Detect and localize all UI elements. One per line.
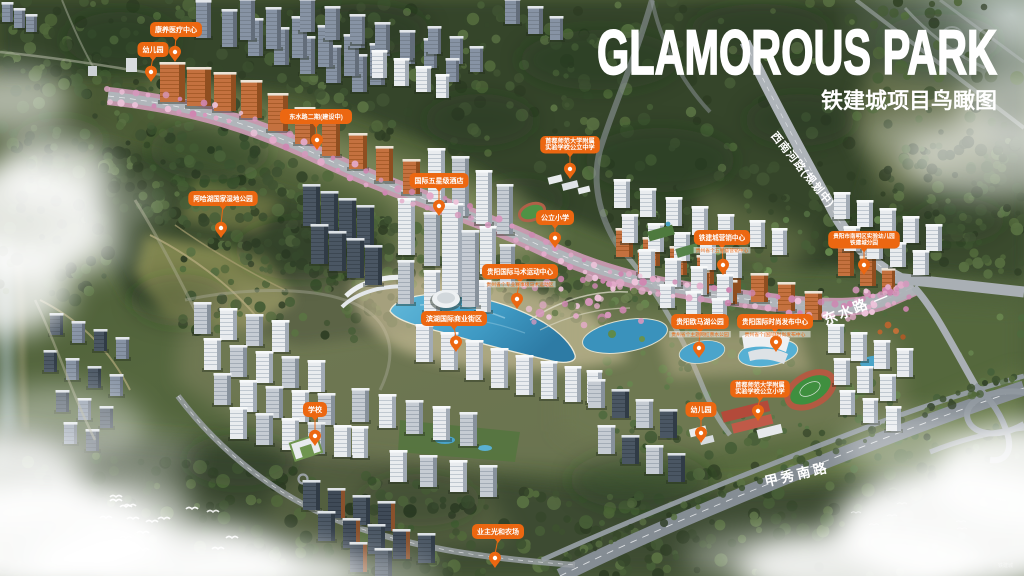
svg-text:贵阳国际时尚发布中心: 贵阳国际时尚发布中心 [742, 317, 808, 326]
svg-text:贵州省个五星级营销中心: 贵州省个五星级营销中心 [696, 247, 749, 254]
svg-text:业主光和农场: 业主光和农场 [477, 527, 519, 536]
svg-text:贵州省个主题网红亲水公园: 贵州省个主题网红亲水公园 [671, 331, 729, 338]
svg-text:铁建城: 铁建城 [998, 562, 1013, 569]
svg-text:铁建城分园: 铁建城分园 [850, 239, 878, 247]
svg-text:贵阳市南明区实验幼儿园: 贵阳市南明区实验幼儿园 [833, 232, 895, 240]
svg-text:康养医疗中心: 康养医疗中心 [155, 25, 197, 34]
svg-text:国际五星级酒店: 国际五星级酒店 [415, 176, 464, 185]
svg-text:实验学校公立小学: 实验学校公立小学 [735, 388, 785, 396]
svg-text:阿哈湖国家湿地公园: 阿哈湖国家湿地公园 [193, 194, 253, 203]
svg-text:幼儿园: 幼儿园 [143, 45, 164, 54]
svg-text:实验学校公立中学: 实验学校公立中学 [545, 144, 595, 152]
svg-text:公立小学: 公立小学 [541, 213, 569, 222]
svg-text:学校: 学校 [308, 405, 323, 414]
svg-text:东水路二期(建设中): 东水路二期(建设中) [289, 113, 343, 121]
svg-text:贵州省个专业赛事级马术运动区: 贵州省个专业赛事级马术运动区 [486, 281, 553, 288]
svg-text:滨湖国际商业街区: 滨湖国际商业街区 [426, 314, 482, 323]
svg-text:GLAMOROUS PARK: GLAMOROUS PARK [597, 18, 997, 88]
svg-text:贵阳国际马术运动中心: 贵阳国际马术运动中心 [487, 267, 553, 276]
svg-text:幼儿园: 幼儿园 [691, 405, 712, 414]
svg-text:铁建城营销中心: 铁建城营销中心 [698, 233, 746, 242]
svg-text:贵阳欧马湖公园: 贵阳欧马湖公园 [676, 317, 724, 326]
svg-text:铁建城项目鸟瞰图: 铁建城项目鸟瞰图 [821, 88, 997, 113]
